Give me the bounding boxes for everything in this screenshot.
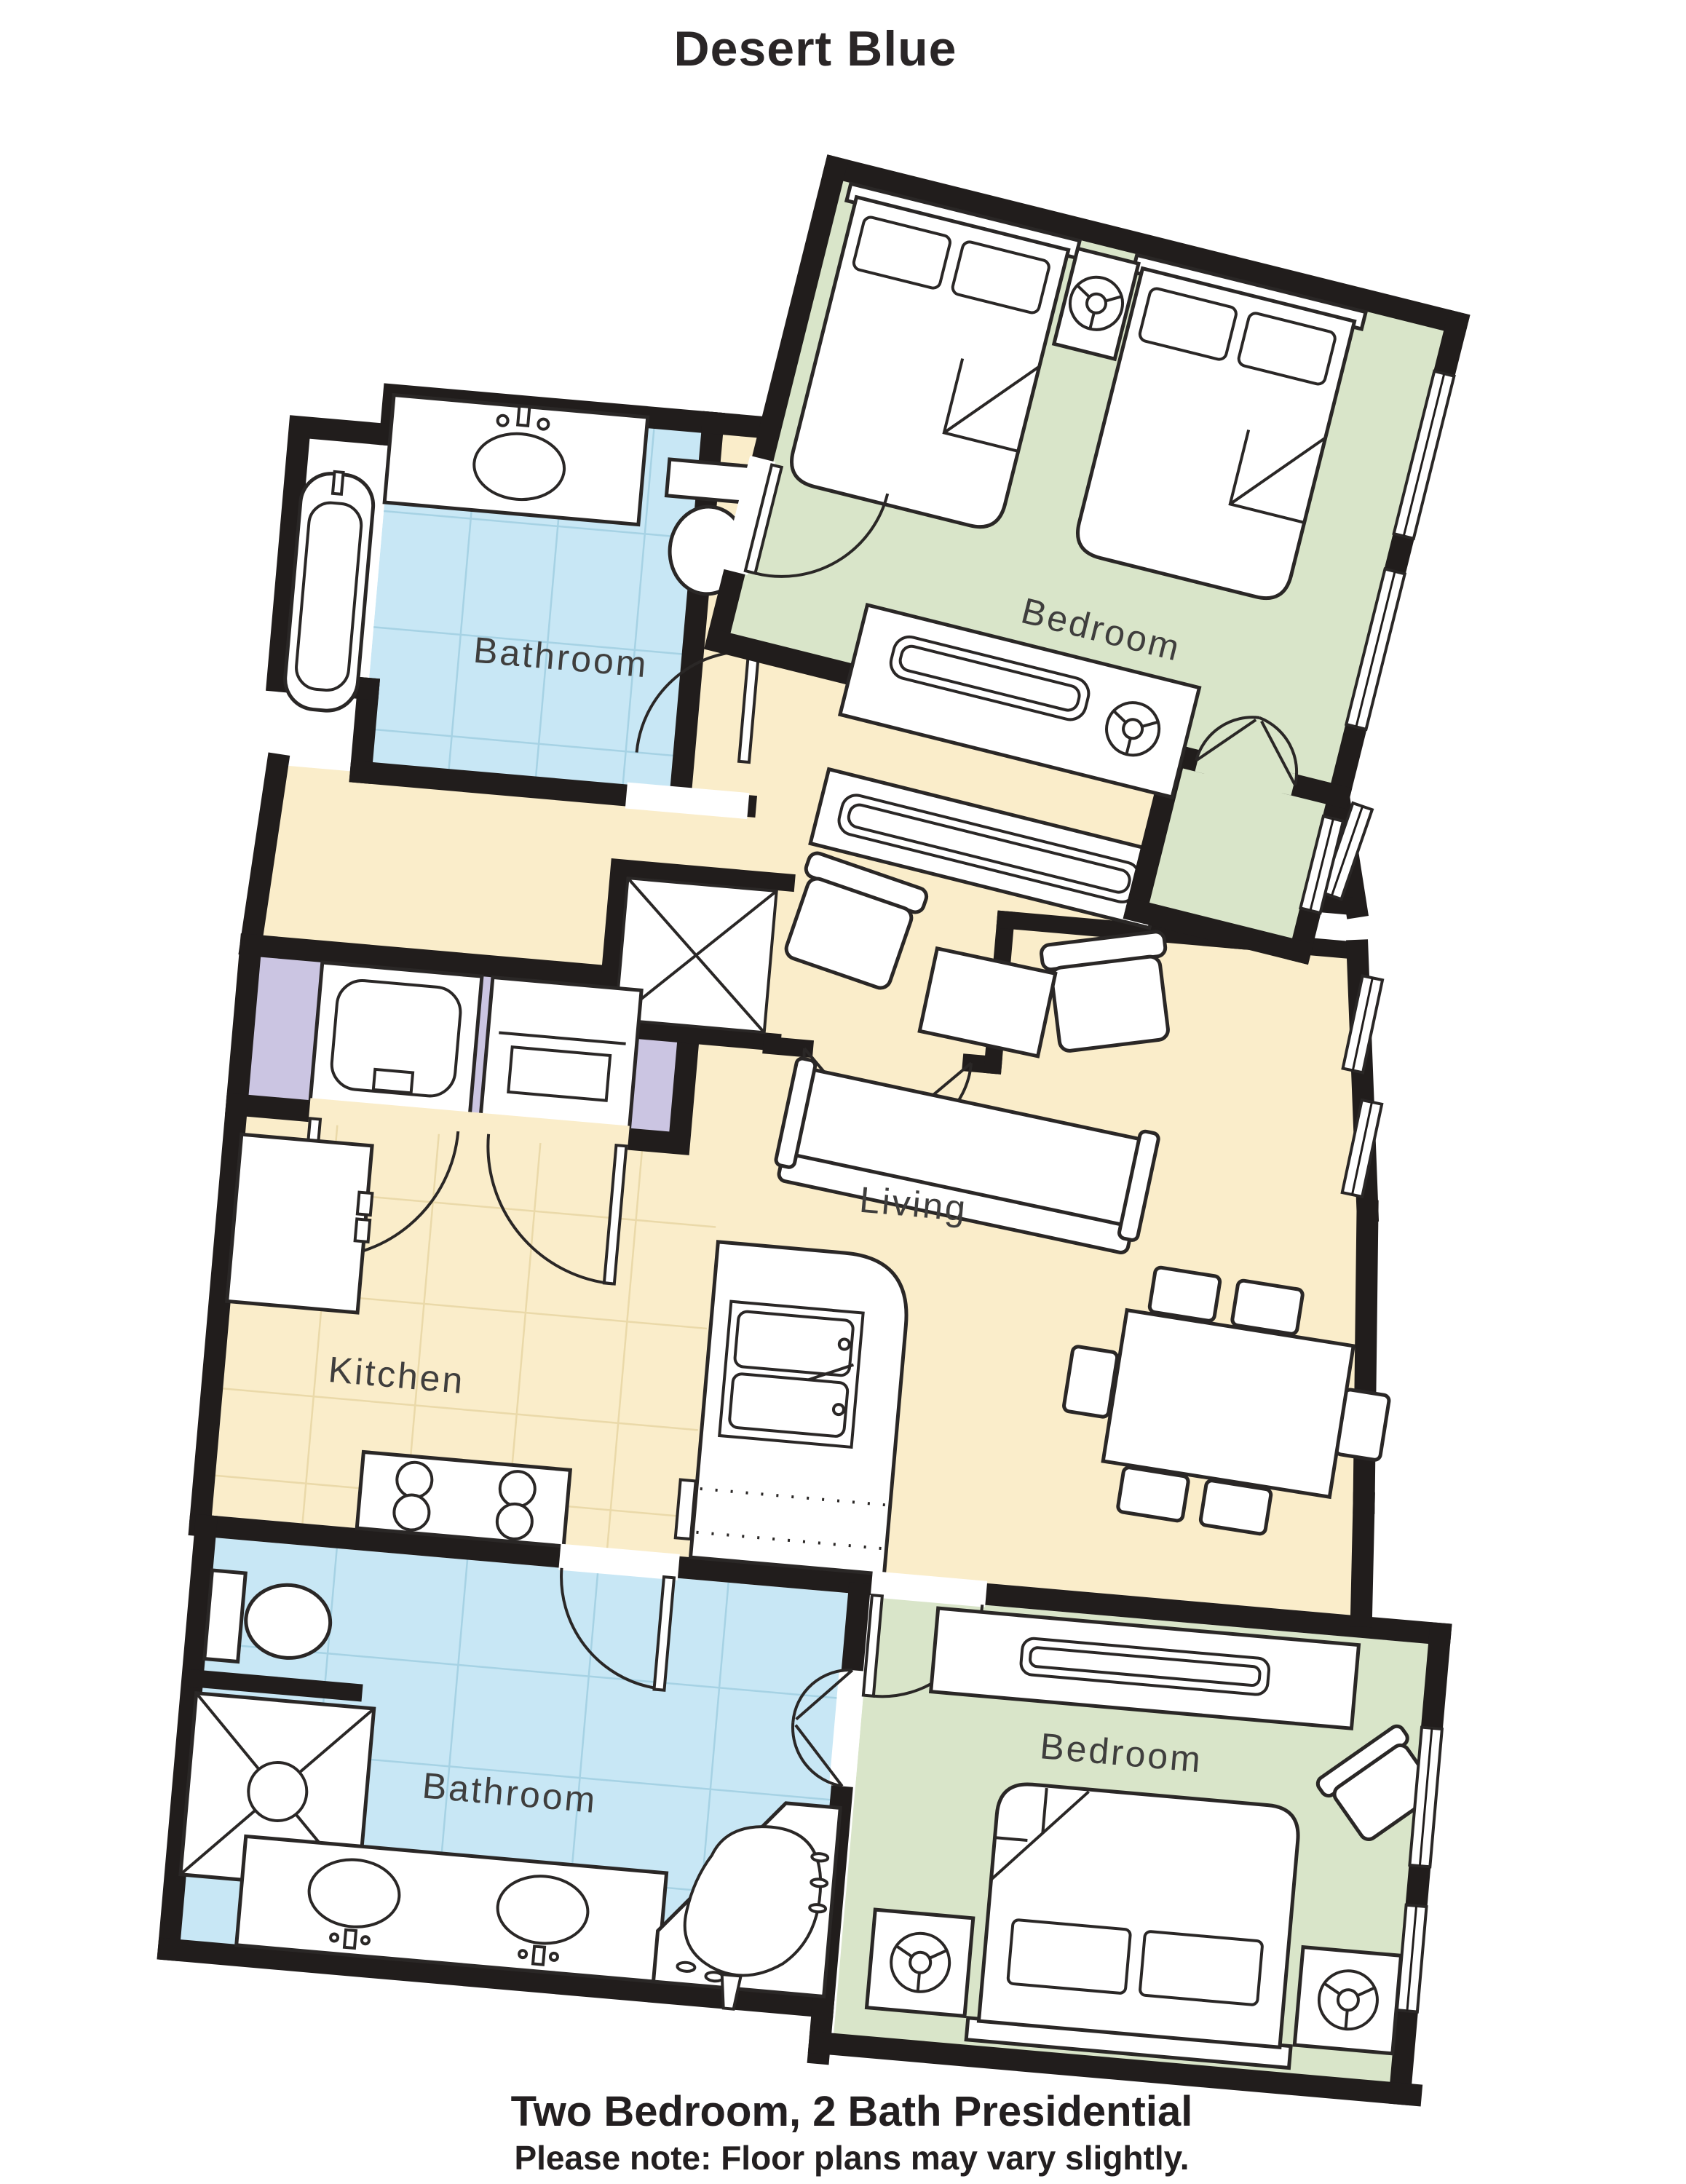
bathroom-top-sink-icon <box>384 395 648 525</box>
nightstand-lamp-icon <box>867 1910 973 2016</box>
page-title: Desert Blue <box>674 21 957 76</box>
floor-plan: Bathroom <box>159 121 1580 2105</box>
plan-note: Please note: Floor plans may vary slight… <box>514 2139 1189 2177</box>
refrigerator-icon <box>227 1134 376 1313</box>
dryer-icon <box>480 977 641 1128</box>
armchair-icon <box>1040 931 1176 1053</box>
plan-caption: Two Bedroom, 2 Bath Presidential <box>511 2088 1193 2135</box>
washer-icon <box>310 962 482 1114</box>
stove-icon <box>357 1452 570 1546</box>
floor-plan-page: Desert Blue <box>0 0 1686 2184</box>
bed-bottom-icon <box>966 1781 1311 2068</box>
floor-plan-canvas: Desert Blue <box>0 0 1686 2184</box>
nightstand-lamp-icon <box>1294 1947 1401 2054</box>
